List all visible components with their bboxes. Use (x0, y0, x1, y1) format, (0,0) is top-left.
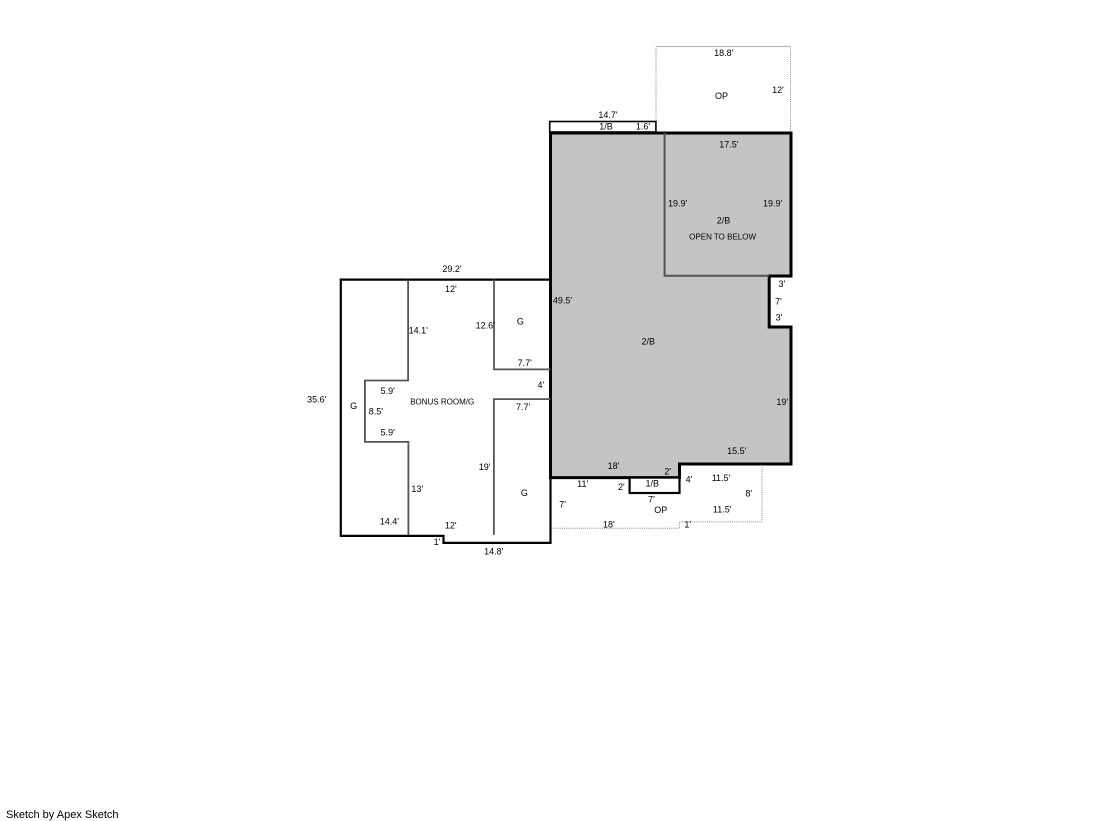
svg-text:2/B: 2/B (717, 216, 731, 226)
svg-text:5.9': 5.9' (381, 428, 396, 438)
svg-text:BONUS ROOM/G: BONUS ROOM/G (410, 398, 474, 407)
svg-text:2': 2' (618, 482, 625, 492)
svg-text:2/B: 2/B (642, 336, 656, 346)
svg-text:19': 19' (776, 397, 788, 407)
svg-text:19.9': 19.9' (763, 199, 783, 209)
svg-text:13': 13' (411, 484, 423, 494)
svg-text:8': 8' (745, 489, 752, 499)
svg-text:1/B: 1/B (599, 122, 613, 132)
svg-text:18': 18' (608, 461, 620, 471)
svg-text:14.7': 14.7' (598, 110, 618, 120)
svg-text:G: G (350, 401, 357, 411)
svg-text:11.5': 11.5' (712, 473, 731, 483)
svg-text:7': 7' (775, 297, 782, 307)
svg-text:35.6': 35.6' (307, 395, 327, 405)
svg-text:7.7': 7.7' (516, 402, 531, 412)
svg-text:17.5': 17.5' (719, 140, 739, 150)
svg-text:Sketch by Apex Sketch: Sketch by Apex Sketch (6, 809, 119, 821)
svg-text:14.1': 14.1' (409, 326, 429, 336)
svg-text:4': 4' (686, 475, 693, 485)
svg-text:1.6': 1.6' (636, 122, 651, 132)
svg-text:7': 7' (648, 495, 655, 505)
svg-text:14.4': 14.4' (380, 517, 400, 527)
svg-text:8.5': 8.5' (369, 407, 384, 417)
svg-text:1': 1' (434, 537, 441, 547)
svg-text:OP: OP (654, 505, 667, 515)
svg-text:11': 11' (577, 479, 588, 489)
svg-text:15.5': 15.5' (727, 446, 747, 456)
svg-text:18': 18' (603, 520, 615, 530)
svg-text:18.8': 18.8' (714, 48, 734, 58)
svg-text:12': 12' (445, 521, 457, 531)
svg-text:3': 3' (776, 313, 783, 323)
svg-text:14.8': 14.8' (484, 547, 504, 557)
svg-text:19': 19' (479, 462, 491, 472)
svg-text:2': 2' (664, 467, 671, 477)
svg-text:G: G (517, 317, 524, 327)
svg-text:29.2': 29.2' (442, 264, 462, 274)
svg-text:49.5': 49.5' (553, 296, 573, 306)
svg-text:OPEN TO BELOW: OPEN TO BELOW (689, 233, 756, 242)
svg-text:12': 12' (772, 85, 784, 95)
svg-text:11.5': 11.5' (713, 505, 732, 515)
svg-text:1': 1' (684, 520, 691, 530)
svg-text:1/B: 1/B (645, 479, 659, 489)
svg-text:4': 4' (538, 380, 545, 390)
svg-text:7.7': 7.7' (518, 358, 533, 368)
svg-text:OP: OP (715, 91, 728, 101)
svg-text:G: G (521, 488, 528, 498)
svg-text:12.6': 12.6' (476, 321, 496, 331)
svg-text:12': 12' (445, 284, 457, 294)
svg-text:19.9': 19.9' (668, 199, 688, 209)
svg-text:7': 7' (559, 500, 566, 510)
svg-text:5.9': 5.9' (381, 386, 396, 396)
svg-text:3': 3' (779, 279, 786, 289)
